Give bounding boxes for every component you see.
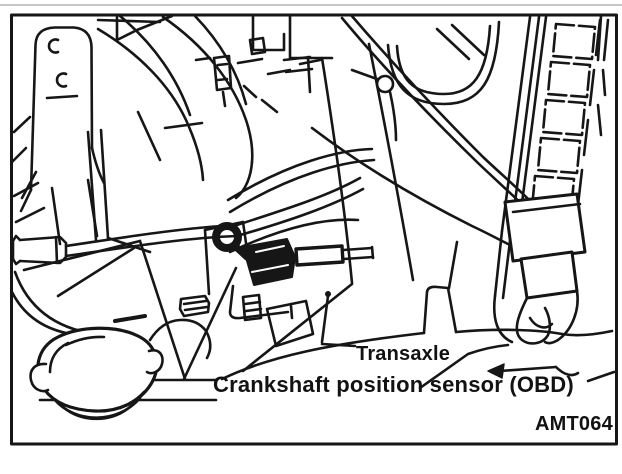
transaxle-label: Transaxle [356, 344, 450, 364]
bolt-hole-mark [49, 40, 58, 53]
sensor-body [243, 239, 295, 285]
figure-code: AMT064 [535, 414, 613, 434]
crankshaft-sensor-label: Crankshaft position sensor (OBD) [213, 374, 574, 396]
pointer-arrow-shaft [500, 367, 556, 371]
sensor-leader-line [184, 268, 236, 379]
harness-boot-drawing [505, 194, 585, 343]
engine-bay-diagram [0, 0, 622, 474]
upper-engine-structure [98, 16, 605, 198]
bolt-hole-mark [57, 74, 66, 87]
hex-bolt [180, 296, 209, 316]
transaxle-leader-line [322, 296, 328, 342]
sensor-connector-plug [296, 246, 343, 265]
mounting-bracket-drawing [12, 28, 150, 253]
pipe-fitting-drawing [13, 236, 66, 264]
manual-figure-page: Transaxle Crankshaft position sensor (OB… [0, 0, 622, 474]
hose-clamp-ring [377, 76, 393, 92]
radiator-cap-drawing [31, 328, 163, 419]
